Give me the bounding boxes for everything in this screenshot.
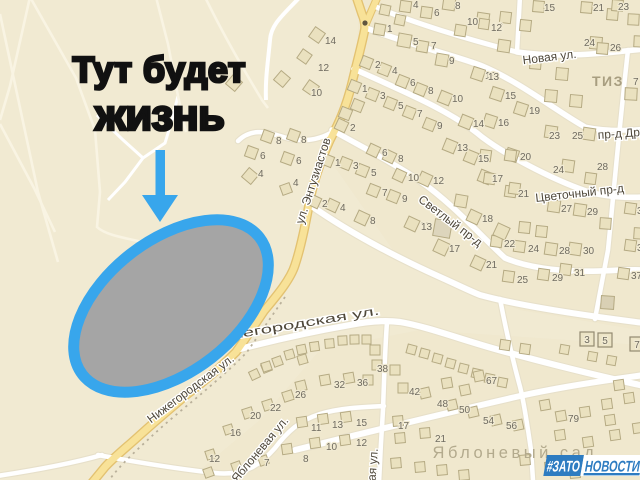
svg-text:28: 28 [559, 246, 571, 257]
svg-text:48: 48 [437, 399, 449, 410]
svg-text:4: 4 [413, 0, 419, 11]
svg-text:19: 19 [529, 106, 541, 117]
svg-text:15: 15 [505, 91, 517, 102]
svg-text:8: 8 [276, 136, 282, 147]
svg-text:5: 5 [371, 168, 377, 179]
svg-text:1: 1 [362, 84, 368, 95]
svg-text:16: 16 [230, 428, 242, 439]
svg-text:5: 5 [413, 37, 419, 48]
svg-text:9: 9 [437, 121, 443, 132]
svg-text:15: 15 [356, 418, 368, 429]
svg-text:7: 7 [633, 77, 639, 88]
svg-text:8: 8 [370, 216, 376, 227]
svg-text:10: 10 [467, 17, 479, 28]
svg-text:ТИЗ: ТИЗ [592, 73, 624, 89]
svg-text:4: 4 [392, 66, 398, 77]
svg-text:4: 4 [340, 203, 346, 214]
svg-text:21: 21 [593, 3, 605, 14]
svg-text:36: 36 [357, 378, 369, 389]
svg-text:8: 8 [428, 86, 434, 97]
svg-text:9: 9 [449, 56, 455, 67]
svg-text:15: 15 [544, 3, 556, 14]
svg-text:1: 1 [335, 158, 341, 169]
svg-text:3: 3 [353, 161, 359, 172]
svg-text:6: 6 [382, 148, 388, 159]
svg-text:22: 22 [270, 403, 282, 414]
svg-text:2: 2 [375, 60, 381, 71]
svg-text:жизнь: жизнь [94, 91, 225, 140]
svg-text:14: 14 [325, 36, 337, 47]
svg-text:23: 23 [618, 2, 630, 13]
svg-text:7: 7 [634, 340, 640, 351]
svg-text:24: 24 [553, 165, 565, 176]
svg-text:9: 9 [402, 194, 408, 205]
svg-text:6: 6 [434, 8, 440, 19]
svg-text:13: 13 [332, 420, 344, 431]
svg-text:12: 12 [318, 63, 330, 74]
svg-text:67: 67 [486, 376, 498, 387]
svg-text:3: 3 [584, 335, 590, 346]
svg-text:32: 32 [334, 380, 346, 391]
svg-text:3: 3 [380, 91, 386, 102]
svg-text:Тут будет: Тут будет [73, 49, 246, 90]
svg-text:23: 23 [549, 131, 561, 142]
svg-text:22: 22 [504, 239, 516, 250]
svg-text:29: 29 [587, 207, 599, 218]
svg-text:4: 4 [258, 169, 264, 180]
svg-text:29: 29 [552, 273, 564, 284]
svg-text:6: 6 [296, 156, 302, 167]
svg-text:6: 6 [410, 78, 416, 89]
svg-text:17: 17 [449, 244, 461, 255]
svg-text:7: 7 [264, 458, 270, 469]
svg-text:56: 56 [506, 421, 518, 432]
svg-text:6: 6 [260, 151, 266, 162]
svg-text:27: 27 [561, 204, 573, 215]
svg-text:13: 13 [457, 143, 469, 154]
svg-text:5: 5 [398, 101, 404, 112]
svg-text:26: 26 [610, 43, 622, 54]
svg-text:17: 17 [492, 174, 504, 185]
svg-text:37: 37 [631, 271, 640, 282]
svg-text:25: 25 [517, 275, 529, 286]
svg-text:21: 21 [518, 189, 530, 200]
svg-text:12: 12 [491, 23, 503, 34]
svg-text:10: 10 [311, 88, 323, 99]
svg-text:38: 38 [377, 364, 389, 375]
svg-text:1: 1 [387, 24, 393, 35]
svg-text:30: 30 [583, 246, 595, 257]
svg-text:12: 12 [433, 176, 445, 187]
svg-text:8: 8 [301, 135, 307, 146]
svg-text:20: 20 [520, 152, 532, 163]
svg-text:21: 21 [486, 260, 498, 271]
svg-text:7: 7 [431, 41, 437, 52]
svg-text:13: 13 [488, 72, 500, 83]
svg-text:#ЗАТО: #ЗАТО [545, 459, 581, 476]
svg-text:12: 12 [209, 454, 221, 465]
svg-text:50: 50 [459, 405, 471, 416]
svg-text:НОВОСТИ: НОВОСТИ [583, 459, 640, 476]
svg-text:79: 79 [568, 414, 580, 425]
svg-text:18: 18 [482, 214, 494, 225]
svg-text:28: 28 [597, 162, 609, 173]
svg-text:31: 31 [574, 268, 586, 279]
svg-text:2: 2 [350, 123, 356, 134]
svg-text:10: 10 [408, 173, 420, 184]
svg-text:25: 25 [572, 131, 584, 142]
svg-text:12: 12 [356, 438, 368, 449]
svg-text:4: 4 [293, 178, 299, 189]
svg-text:5: 5 [602, 336, 608, 347]
svg-text:16: 16 [498, 118, 510, 129]
svg-text:24: 24 [528, 244, 540, 255]
svg-text:11: 11 [311, 423, 322, 434]
svg-text:26: 26 [295, 390, 307, 401]
svg-text:8: 8 [303, 454, 309, 465]
svg-text:15: 15 [478, 154, 490, 165]
svg-text:10: 10 [326, 442, 338, 453]
svg-text:8: 8 [398, 154, 404, 165]
svg-text:42: 42 [409, 387, 421, 398]
svg-text:2: 2 [322, 199, 328, 210]
svg-text:24: 24 [584, 38, 596, 49]
svg-text:7: 7 [417, 109, 423, 120]
svg-text:54: 54 [483, 416, 495, 427]
svg-text:17: 17 [398, 421, 410, 432]
svg-text:10: 10 [452, 94, 464, 105]
svg-text:7: 7 [382, 188, 388, 199]
svg-text:8: 8 [455, 1, 461, 12]
svg-text:13: 13 [421, 222, 433, 233]
svg-text:20: 20 [250, 411, 262, 422]
svg-text:14: 14 [473, 119, 485, 130]
